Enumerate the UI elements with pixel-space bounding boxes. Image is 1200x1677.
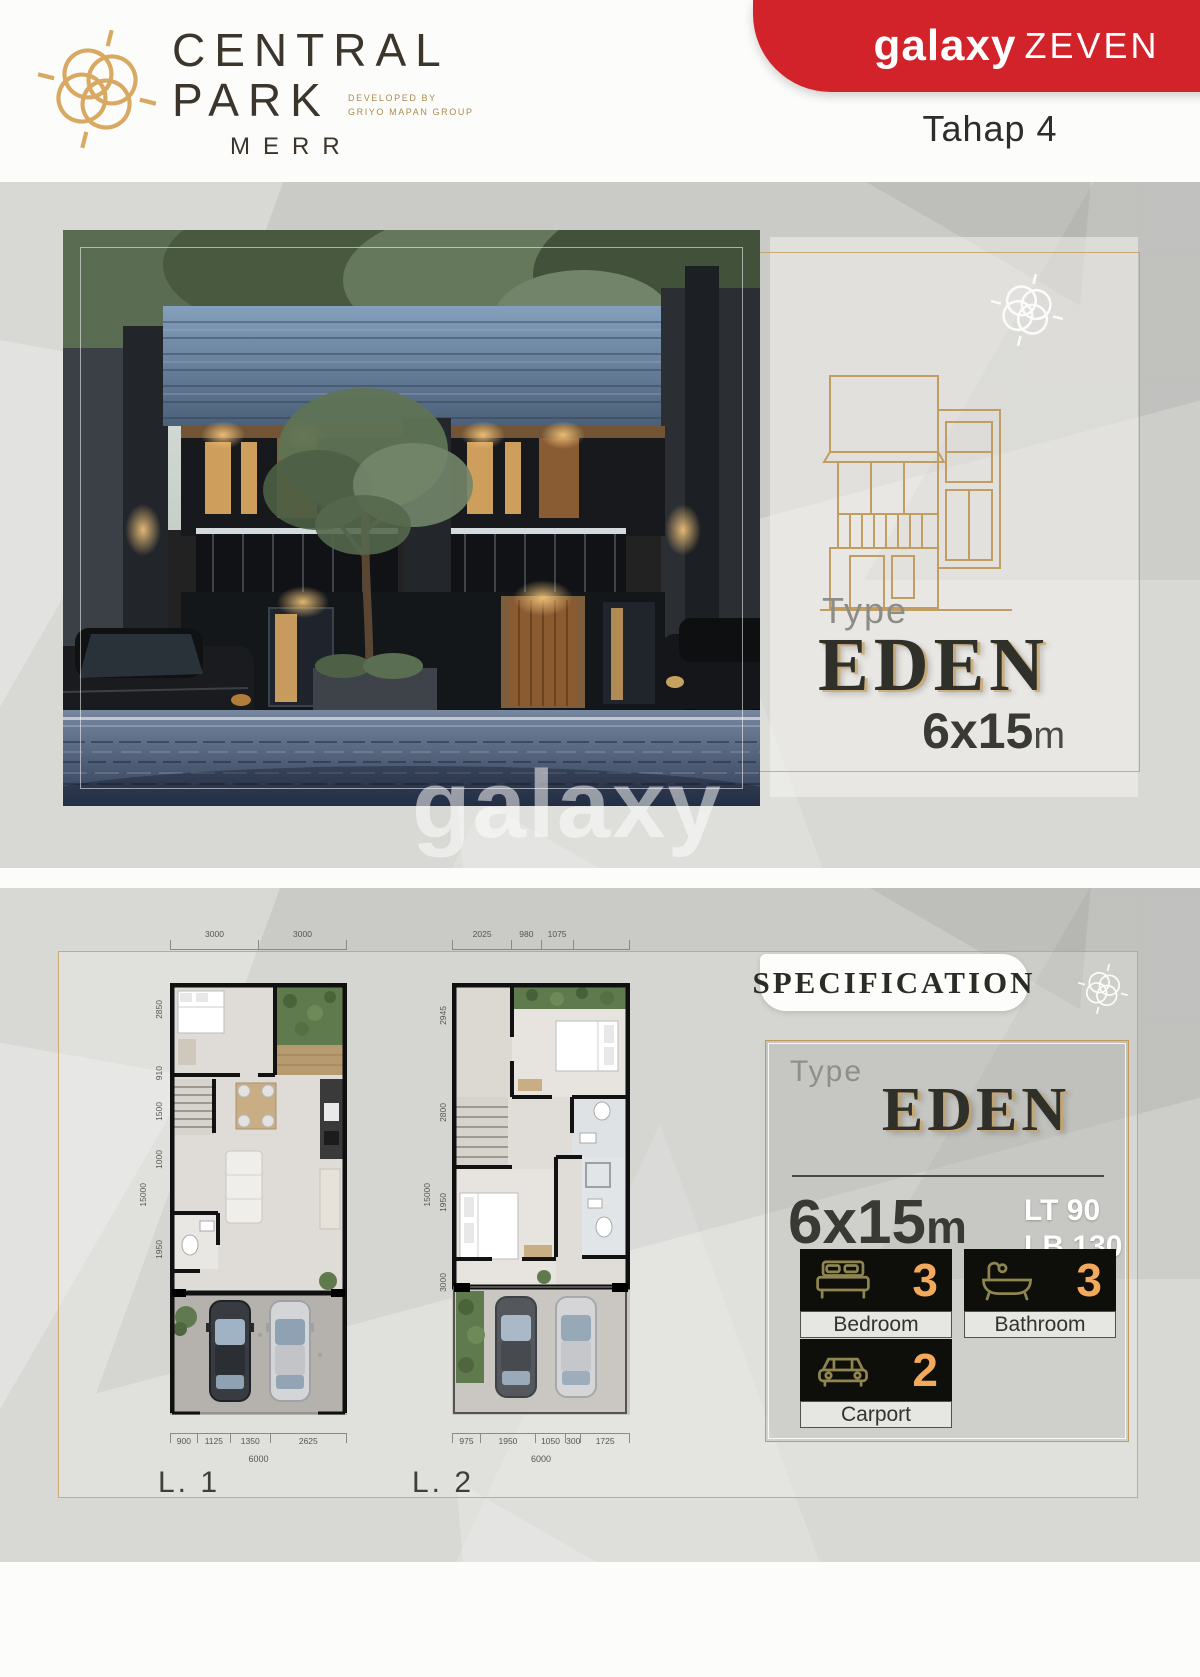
bath-icon (978, 1257, 1036, 1303)
zeven-logo: ZEVEN (1024, 25, 1159, 67)
l2-top-dimensions: 2025 980 1075 (452, 940, 630, 950)
bathroom-label: Bathroom (964, 1311, 1116, 1338)
hero-size-unit: m (1033, 715, 1065, 757)
central-park-logo-mark (28, 20, 166, 158)
l1-label: L. 1 (158, 1466, 220, 1500)
bathroom-count: 3 (1076, 1253, 1102, 1307)
spec-size: 6x15m (788, 1187, 967, 1258)
bathroom-stat-box: 3 (964, 1249, 1116, 1311)
developer-name: GRIYO MAPAN GROUP (348, 106, 474, 120)
spec-divider (792, 1175, 1104, 1177)
l2-car-light (556, 1297, 596, 1397)
spec-size-value: 6x15 (788, 1188, 926, 1257)
l1-bottom-dimensions: 900 1125 1350 2625 (170, 1433, 347, 1443)
l1-bottom-total: 6000 (170, 1454, 347, 1464)
developer-credit: DEVELOPED BY GRIYO MAPAN GROUP (348, 92, 474, 119)
l1-left-total: 15000 (138, 1183, 148, 1207)
l1-car-dark (206, 1301, 254, 1401)
hero-size-value: 6x15 (922, 703, 1033, 759)
specification-title: SPECIFICATION (752, 965, 1035, 1001)
car-icon (814, 1347, 872, 1393)
brand-merr: MERR (172, 133, 450, 161)
hero-size: 6x15m (850, 702, 1065, 760)
hero-type-name: EDEN (818, 622, 1049, 709)
carport-count: 2 (912, 1343, 938, 1397)
l2-left-dim: 2945 (438, 1006, 448, 1025)
carport-stat-box: 2 (800, 1339, 952, 1401)
floorplan-l1 (170, 983, 347, 1415)
l1-top-dimensions: 3000 3000 (170, 940, 347, 950)
bed-icon (814, 1257, 872, 1303)
galaxy-zeven-banner: galaxy ZEVEN (753, 0, 1200, 92)
carport-label: Carport (800, 1401, 952, 1428)
bedroom-label: Bedroom (800, 1311, 952, 1338)
spec-card: Type EDEN 6x15m LT 90 LB 130 (765, 1040, 1129, 1442)
hero-section: galaxy (0, 182, 1200, 868)
phase-label: Tahap 4 (880, 108, 1100, 150)
l1-car-light (266, 1301, 314, 1401)
header: CENTRAL PARK MERR DEVELOPED BY GRIYO MAP… (0, 0, 1200, 182)
l2-left-total: 15000 (422, 1183, 432, 1207)
house-render-photo (63, 230, 760, 806)
l2-bottom-total: 6000 (452, 1454, 630, 1464)
specification-banner: SPECIFICATION (760, 954, 1028, 1011)
l2-bottom-dimensions: 975 1950 1050 300 1725 (452, 1433, 630, 1443)
brochure-page: CENTRAL PARK MERR DEVELOPED BY GRIYO MAP… (0, 0, 1200, 1677)
specification-section: SPECIFICATION Type EDEN 6x15m LT 90 LB 1… (0, 888, 1200, 1562)
house-facade-line-art (816, 370, 1021, 614)
developed-by-label: DEVELOPED BY (348, 92, 474, 106)
bedroom-count: 3 (912, 1253, 938, 1307)
galaxy-logo: galaxy (873, 21, 1016, 71)
floorplan-l2 (452, 983, 630, 1415)
flower-logo-watermark (985, 268, 1069, 352)
bedroom-stat-box: 3 (800, 1249, 952, 1311)
l1-left-dim: 2850 (154, 1000, 164, 1019)
spec-size-unit: m (926, 1201, 967, 1253)
land-area: LT 90 (1024, 1193, 1122, 1229)
flower-logo-small (1074, 960, 1132, 1018)
l2-label: L. 2 (412, 1466, 474, 1500)
brand-line-1: CENTRAL (172, 26, 450, 76)
galaxy-watermark: galaxy (412, 750, 723, 860)
spec-type-name: EDEN (836, 1075, 1116, 1146)
photo-inner-frame (80, 247, 743, 789)
l2-car-dark (496, 1297, 536, 1397)
